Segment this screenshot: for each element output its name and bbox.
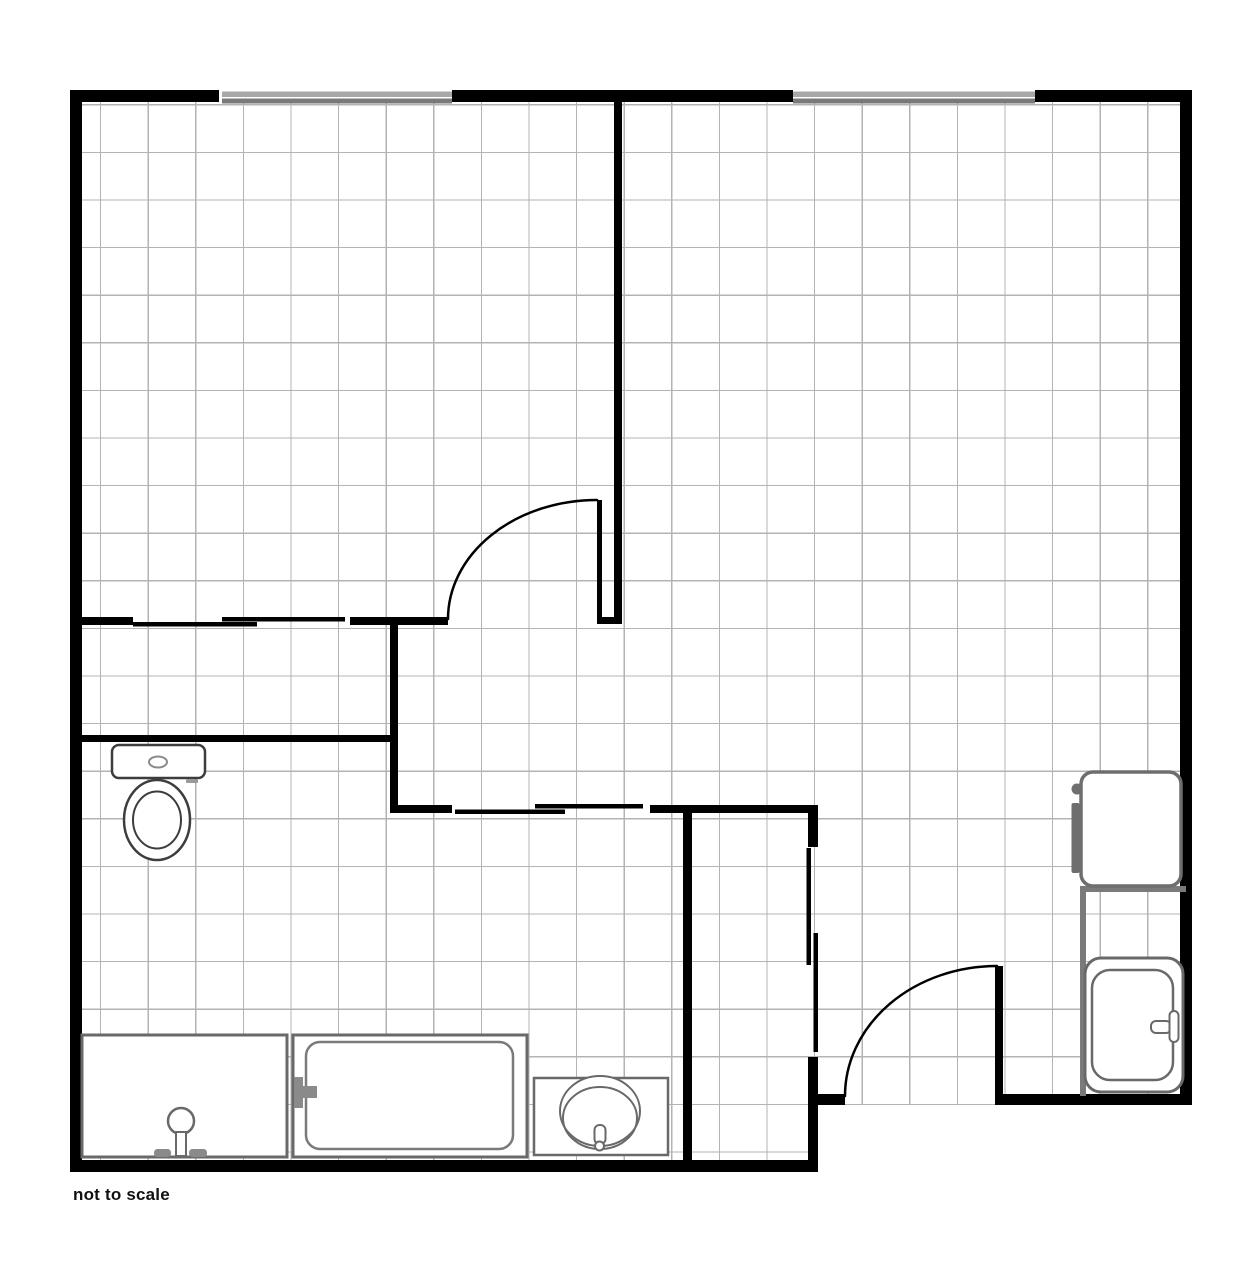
window-top-right-inner-pane — [793, 99, 1035, 104]
sliding-door-bath-panel-a — [455, 810, 565, 815]
floor-plan-page: not to scale — [0, 0, 1250, 1277]
vanity-faucet-stem — [176, 1132, 186, 1156]
vanity-handle-left — [154, 1149, 171, 1157]
wall-closet-left — [70, 617, 133, 625]
toilet-hinge-mark — [186, 780, 198, 784]
vanity-handle-right — [189, 1149, 207, 1157]
window-top-right-outer-pane — [793, 92, 1035, 98]
floor-plan — [0, 0, 1250, 1277]
shower-handle-horizontal — [1151, 1021, 1171, 1033]
wall-mid-vertical — [390, 617, 398, 813]
bathtub-faucet-spout — [303, 1086, 317, 1098]
scale-note: not to scale — [73, 1185, 170, 1205]
wall-bathroom-top — [70, 735, 398, 742]
wall-top-right — [1035, 90, 1192, 102]
outside-mask-bottom-right — [818, 1105, 1180, 1161]
wall-entry-right — [995, 1094, 1192, 1105]
wall-hall-right-bottom-stub — [808, 1057, 818, 1172]
door-swing-arc-entry — [845, 966, 997, 1096]
bathtub-faucet-bar — [294, 1077, 303, 1108]
wall-bedroom-door-jamb — [597, 500, 602, 624]
sliding-door-closet-panel-b — [222, 617, 345, 622]
wall-core-vertical — [614, 90, 622, 623]
wall-entry-door-jamb — [995, 966, 1003, 1096]
wall-bathroom-right-seg-b — [650, 805, 818, 813]
wall-jamb-connector — [597, 617, 622, 624]
vanity-faucet-head — [168, 1108, 194, 1134]
wall-bottom-main — [70, 1160, 818, 1172]
sliding-door-closet-panel-a — [133, 622, 257, 627]
wall-top-left — [70, 90, 219, 102]
wall-top-middle — [452, 90, 793, 102]
wall-hall-right-top-stub — [808, 805, 818, 847]
wall-right — [1180, 90, 1192, 1105]
sliding-door-hall-panel-a — [807, 848, 812, 965]
wall-hall-left — [683, 805, 692, 1172]
sliding-door-hall-panel-b — [814, 933, 819, 1052]
washer-door-bar — [1072, 803, 1080, 873]
sliding-door-bath-panel-b — [535, 804, 643, 809]
toilet-flush-button — [149, 757, 167, 768]
door-swing-arc-bedroom — [448, 500, 597, 619]
window-top-left-inner-pane — [222, 99, 452, 104]
window-top-left-outer-pane — [222, 92, 452, 98]
shower-handle-vertical — [1170, 1011, 1179, 1042]
wall-left — [70, 90, 82, 1172]
sink-drain — [595, 1142, 604, 1151]
wall-closet-right — [350, 617, 448, 625]
wall-bathroom-right-seg-a — [392, 805, 452, 813]
washer-body — [1081, 772, 1181, 886]
bathtub-basin — [306, 1042, 513, 1149]
